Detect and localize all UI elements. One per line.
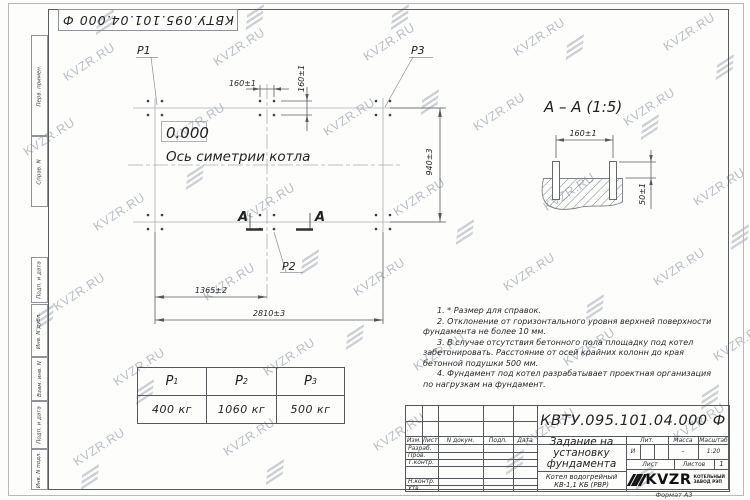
role-razrab: Разраб. (406, 444, 438, 452)
col-data: Дата (513, 436, 537, 444)
load-value-p1: 400 кг (138, 396, 207, 423)
role-prov: Пров. (406, 452, 438, 459)
role-tkontr: Т.контр. (406, 459, 438, 466)
top-stamp-box: КВТУ.095.101.04.000 Ф (58, 9, 238, 31)
note-4: 4. Фундамент под котел разрабатывает про… (423, 369, 723, 390)
dim-1365-label: 1365±2 (195, 286, 227, 295)
anchor-bolt-right (610, 162, 617, 200)
scale-header: Масштаб (698, 436, 729, 444)
document-title: Задание на установку фундамента (537, 436, 626, 471)
load-point-p2-label: P2 (282, 260, 296, 273)
lit-value: И (626, 444, 640, 459)
col-podp: Подп. (483, 436, 513, 444)
section-view: А – А (1:5) 160±1 50±1 (542, 98, 656, 209)
load-table-header-p2: P2 (207, 368, 277, 396)
top-stamp-code: КВТУ.095.101.04.000 Ф (62, 13, 234, 28)
section-dim-50-label: 50±1 (638, 183, 647, 205)
dim-160v-label: 160±1 (297, 65, 306, 92)
scale-value: 1:20 (698, 444, 729, 459)
anchor-bolt-left (553, 162, 560, 200)
section-letter-right: А (314, 210, 325, 225)
logo-caption: КОТЕЛЬНЫЙ ЗАВОД РЭП (693, 475, 725, 486)
product-name: Котел водогрейный КВ-1,1 КБ (РВР) (537, 471, 626, 491)
dim-160h-label: 160±1 (229, 79, 256, 88)
load-point-p3-label: P3 (411, 44, 425, 57)
col-ndok: N докум. (438, 436, 483, 444)
symmetry-axis-label: Ось симетрии котла (166, 149, 310, 165)
load-table-header-p3: P3 (277, 368, 344, 396)
mass-header: Масса (668, 436, 698, 444)
notes-block: 1. * Размер для справок. 2. Отклонение о… (423, 306, 723, 390)
dim-940-label: 940±3 (425, 148, 434, 175)
kvzr-coil-icon (630, 474, 643, 486)
load-value-p2: 1060 кг (207, 396, 277, 423)
load-table: P1 P2 P3 400 кг 1060 кг 500 кг (137, 367, 345, 424)
section-dim-160-label: 160±1 (569, 129, 596, 138)
mass-value: – (668, 444, 698, 459)
note-3: 3. В случае отсутствия бетонного пола пл… (423, 338, 723, 370)
section-letter-left: А (237, 210, 248, 225)
document-designation: КВТУ.095.101.04.000 Ф (537, 406, 729, 436)
level-mark: 0.000 (166, 124, 209, 142)
factory-logo: KVZR КОТЕЛЬНЫЙ ЗАВОД РЭП (626, 469, 729, 491)
load-table-header-p1: P1 (138, 368, 207, 396)
note-1: 1. * Размер для справок. (423, 306, 723, 317)
load-point-p1-label: P1 (137, 44, 151, 57)
role-utv: Утв. (406, 485, 438, 491)
lit-header: Лит. (626, 436, 668, 444)
sheets-label: Листов (674, 459, 714, 469)
foundation-plan: 0.000 Ось симетрии котла P1 P3 P2 160±1 … (128, 44, 446, 324)
col-izm: Изм. (406, 436, 422, 444)
col-list: Лист (422, 436, 438, 444)
load-value-p3: 500 кг (277, 396, 344, 423)
format-label: Формат А3 (618, 491, 730, 499)
title-block: Изм. Лист N докум. Подп. Дата Разраб. Пр… (405, 405, 730, 492)
dim-2810-label: 2810±3 (253, 309, 285, 318)
section-cut-marks (246, 213, 313, 230)
note-2: 2. Отклонение от горизонтального уровня … (423, 317, 723, 338)
section-title: А – А (1:5) (543, 98, 622, 116)
logo-text: KVZR (645, 472, 691, 488)
sheet-label: Лист (626, 459, 674, 469)
sheets-value: 1 (714, 459, 729, 469)
